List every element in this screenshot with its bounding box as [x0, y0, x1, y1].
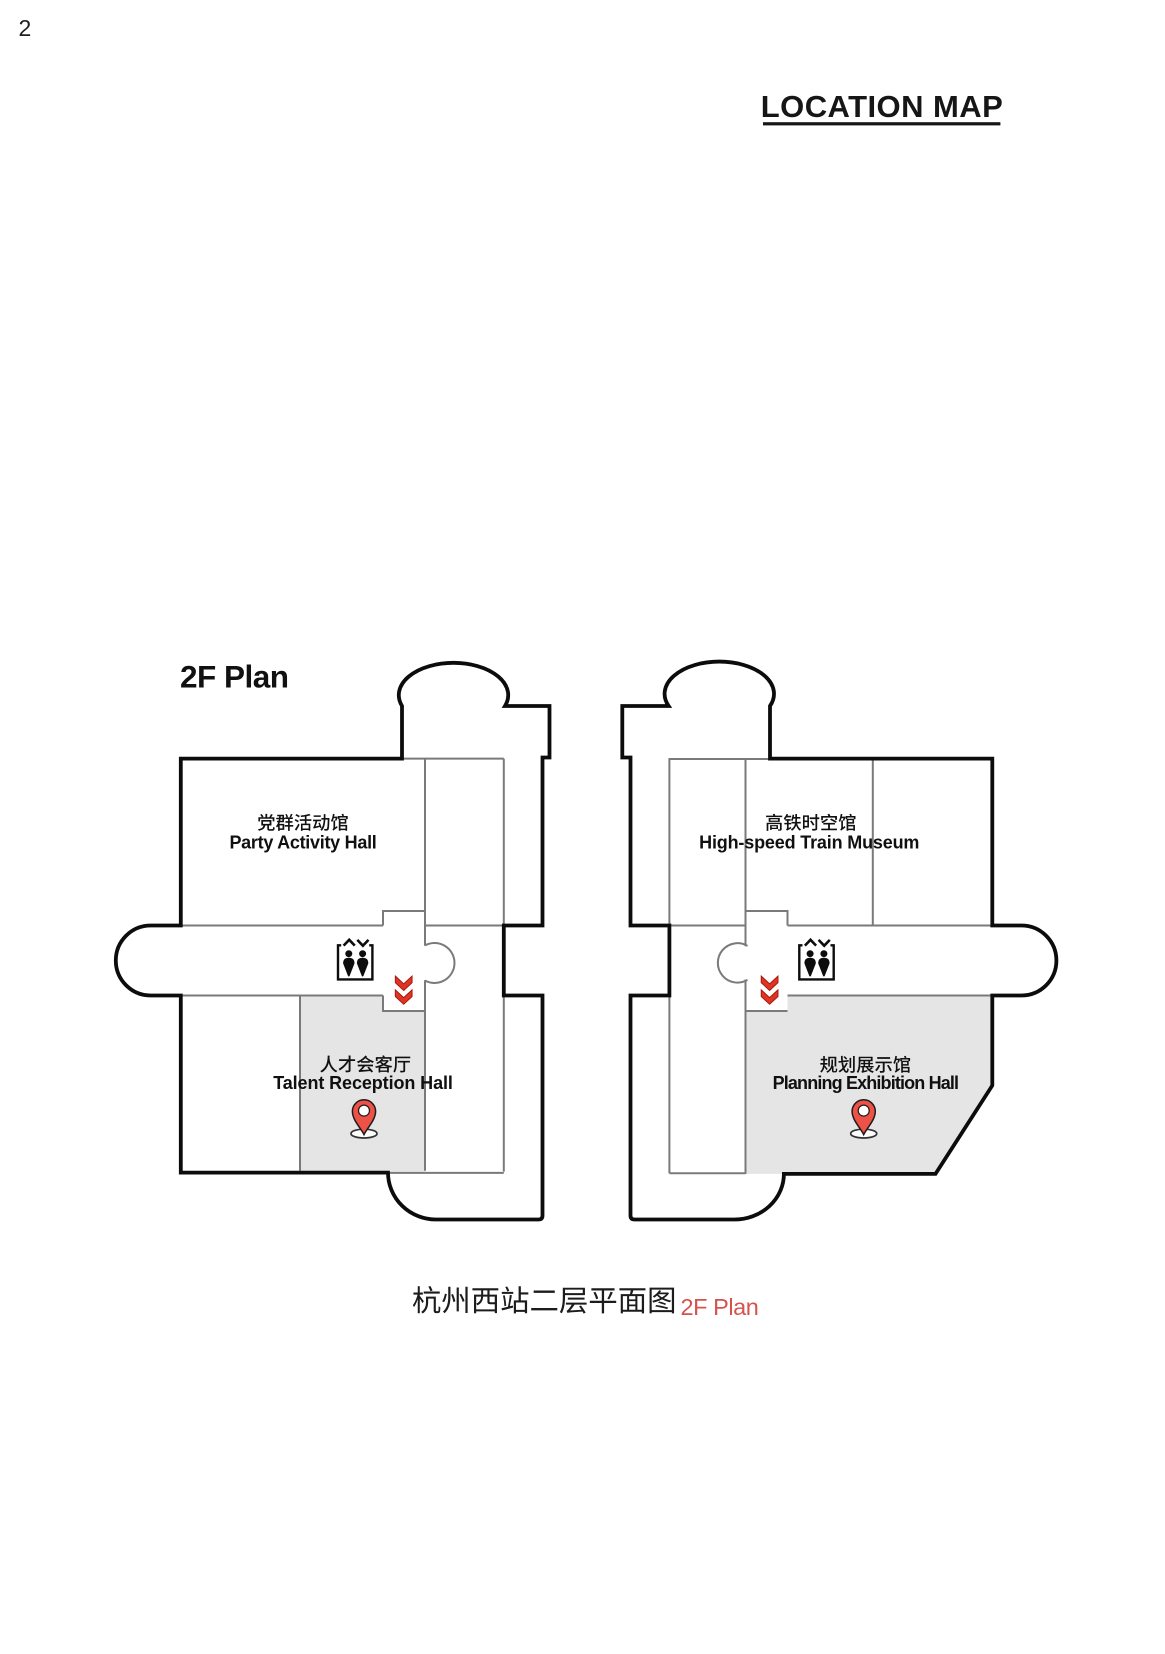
svg-text:Party Activity Hall: Party Activity Hall — [229, 832, 376, 852]
svg-text:2F Plan: 2F Plan — [180, 658, 289, 694]
svg-text:Talent Reception Hall: Talent Reception Hall — [273, 1073, 453, 1093]
svg-text:2: 2 — [19, 15, 32, 41]
svg-text:LOCATION MAP: LOCATION MAP — [761, 89, 1003, 124]
svg-text:2F Plan: 2F Plan — [681, 1294, 759, 1320]
svg-text:High-speed Train Museum: High-speed Train Museum — [699, 832, 919, 852]
svg-text:Planning Exhibition Hall: Planning Exhibition Hall — [773, 1073, 959, 1093]
